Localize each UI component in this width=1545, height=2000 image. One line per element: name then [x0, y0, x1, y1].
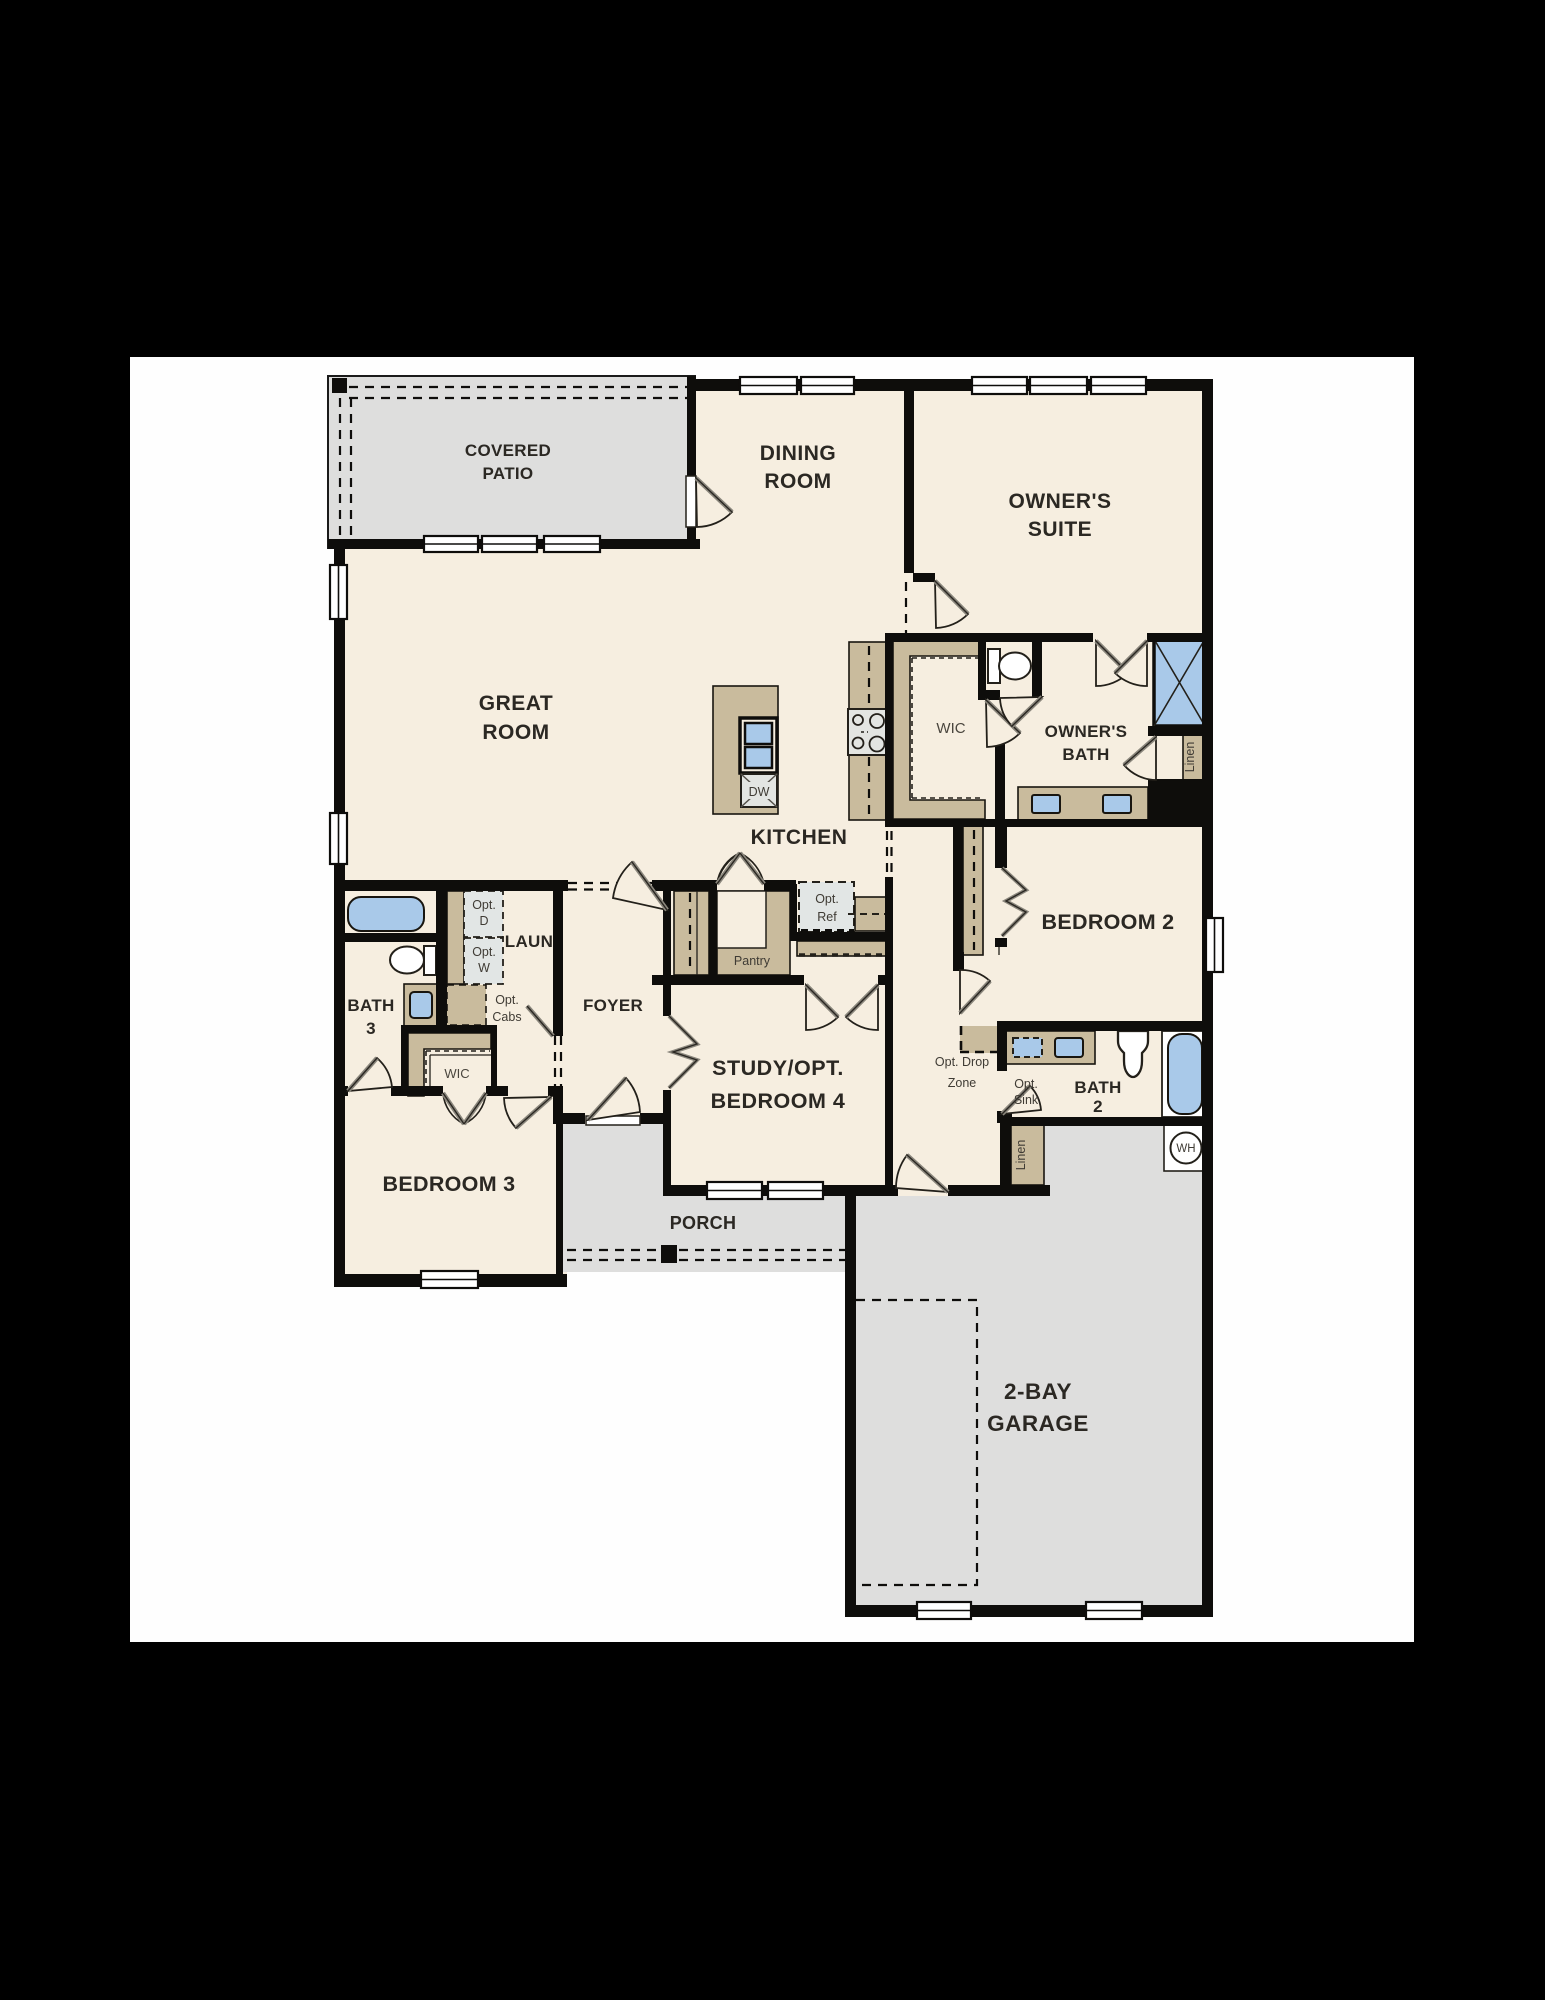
svg-text:WIC: WIC	[936, 720, 965, 737]
svg-text:ROOM: ROOM	[482, 721, 549, 744]
svg-text:ROOM: ROOM	[764, 470, 831, 493]
svg-text:BATH: BATH	[1074, 1078, 1121, 1097]
svg-text:Ref: Ref	[817, 910, 837, 924]
svg-text:Pantry: Pantry	[734, 954, 771, 968]
svg-text:PATIO: PATIO	[483, 464, 534, 483]
svg-text:COVERED: COVERED	[465, 441, 551, 460]
svg-text:GREAT: GREAT	[479, 692, 553, 715]
svg-text:Opt.: Opt.	[1014, 1077, 1038, 1091]
svg-text:Opt.: Opt.	[472, 898, 496, 912]
svg-text:Sink: Sink	[1014, 1093, 1039, 1107]
svg-text:WIC: WIC	[444, 1066, 469, 1081]
svg-text:DW: DW	[749, 785, 770, 799]
svg-text:D: D	[479, 914, 488, 928]
svg-text:LAUN: LAUN	[505, 932, 553, 951]
svg-text:BATH: BATH	[347, 996, 394, 1015]
svg-text:W: W	[478, 961, 490, 975]
svg-text:FOYER: FOYER	[583, 996, 643, 1015]
svg-text:KITCHEN: KITCHEN	[751, 826, 848, 849]
svg-text:Linen: Linen	[1014, 1140, 1028, 1171]
svg-text:2-BAY: 2-BAY	[1004, 1379, 1072, 1404]
svg-text:BEDROOM 3: BEDROOM 3	[383, 1172, 516, 1196]
svg-text:BEDROOM 2: BEDROOM 2	[1042, 910, 1175, 934]
svg-text:Zone: Zone	[948, 1076, 977, 1090]
svg-text:Opt.: Opt.	[495, 993, 519, 1007]
svg-text:OWNER'S: OWNER'S	[1045, 722, 1128, 741]
svg-text:2: 2	[1093, 1097, 1103, 1116]
svg-text:STUDY/OPT.: STUDY/OPT.	[712, 1056, 844, 1080]
svg-text:BATH: BATH	[1062, 745, 1109, 764]
svg-text:Linen: Linen	[1183, 742, 1197, 773]
svg-text:3: 3	[366, 1019, 376, 1038]
svg-text:Opt.: Opt.	[815, 892, 839, 906]
svg-text:GARAGE: GARAGE	[987, 1411, 1089, 1436]
svg-text:WH: WH	[1176, 1143, 1195, 1155]
svg-text:OWNER'S: OWNER'S	[1009, 490, 1112, 513]
svg-text:BEDROOM 4: BEDROOM 4	[711, 1089, 846, 1113]
svg-text:SUITE: SUITE	[1028, 518, 1092, 541]
svg-text:Opt. Drop: Opt. Drop	[935, 1055, 989, 1069]
svg-text:Cabs: Cabs	[492, 1010, 521, 1024]
svg-text:Opt.: Opt.	[472, 945, 496, 959]
svg-text:DINING: DINING	[760, 442, 837, 465]
svg-text:PORCH: PORCH	[670, 1213, 737, 1233]
